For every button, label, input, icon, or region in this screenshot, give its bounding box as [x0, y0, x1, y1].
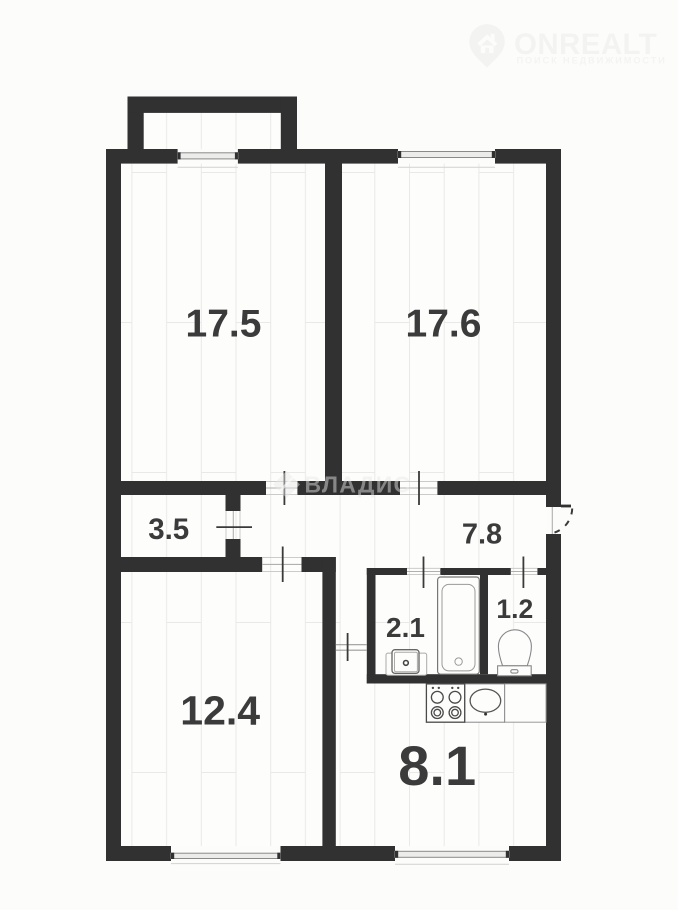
svg-text:3.5: 3.5: [148, 513, 189, 546]
svg-text:8.1: 8.1: [398, 734, 476, 797]
svg-text:ПОИСК НЕДВИЖИМОСТИ: ПОИСК НЕДВИЖИМОСТИ: [517, 56, 667, 66]
svg-text:ВЛАДИС: ВЛАДИС: [305, 471, 412, 497]
svg-text:17.5: 17.5: [186, 303, 262, 346]
svg-text:12.4: 12.4: [180, 688, 260, 734]
svg-text:17.6: 17.6: [406, 303, 482, 346]
svg-text:7.8: 7.8: [462, 518, 502, 550]
svg-text:1.2: 1.2: [496, 594, 533, 624]
svg-text:2.1: 2.1: [386, 612, 425, 643]
